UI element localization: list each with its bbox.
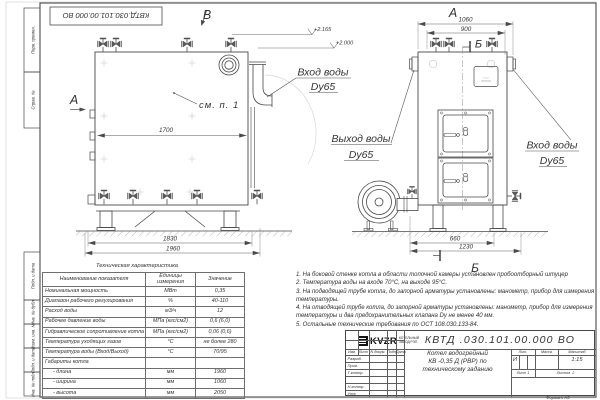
spec-row: Диапазон рабочего регулирования%40-110 xyxy=(43,297,245,307)
valve-icon xyxy=(226,39,237,53)
spec-cell xyxy=(146,358,196,368)
margin-label: Взам. инв. № xyxy=(31,323,36,349)
left-tabs xyxy=(88,110,95,204)
scale-label: Масштаб xyxy=(558,350,596,354)
water-inlet-label-top: Вход воды Dy65 xyxy=(267,67,351,98)
spec-header-row: Наименование показателя Единицы измерени… xyxy=(43,273,245,287)
sheets-value: 2 xyxy=(572,371,574,375)
col-doc: N докум. xyxy=(369,350,387,354)
format-label: Формат А3 xyxy=(546,395,596,400)
side-legs xyxy=(430,205,506,231)
valve-icon xyxy=(407,187,416,199)
dim-text: 1960 xyxy=(166,246,181,253)
valve-icon xyxy=(98,39,109,53)
margin-label: Подп. и дата xyxy=(31,262,36,289)
spec-cell: 12 xyxy=(196,307,245,317)
water-inlet-text: Вход воды xyxy=(298,67,349,79)
blower-fan xyxy=(358,181,400,231)
doc-name-line: Котел водогрейный xyxy=(404,350,511,358)
valve-icon xyxy=(431,39,442,53)
spec-row: Расход водым3/ч12 xyxy=(43,307,245,317)
door-latch-icon xyxy=(463,127,467,135)
spec-row: - длинамм1960 xyxy=(43,368,245,378)
spec-cell: 1060 xyxy=(196,378,245,388)
spec-row: Температура воды (Вход/Выход)°С70/95 xyxy=(43,348,245,358)
dim-text: 1060 xyxy=(458,17,473,24)
dim-text: 1830 xyxy=(163,236,178,243)
spec-cell: Гидравлическое сопротивление котла xyxy=(43,327,146,337)
spec-cell: - ширина xyxy=(43,378,146,388)
spec-cell: 1960 xyxy=(196,368,245,378)
drawing-sheet: Перв. примен. Справ. № Подп. и дата Инв.… xyxy=(0,0,600,400)
valve-icon xyxy=(162,191,173,205)
sheets-label: Листов xyxy=(557,371,570,375)
spec-cell: мм xyxy=(146,368,196,378)
spec-table-title: Техническая характеристика xyxy=(42,263,232,272)
ghost-marks xyxy=(101,60,196,196)
margin-label: Перв. примен. xyxy=(31,26,36,54)
top-valves xyxy=(98,39,237,53)
valve-icon xyxy=(192,191,203,205)
spec-cell: °С xyxy=(146,348,196,358)
spec-cell: мм xyxy=(146,388,196,398)
valve-icon xyxy=(507,191,521,202)
top-flange xyxy=(219,55,239,75)
spec-cell: 0,35 xyxy=(196,287,245,297)
spec-cell: не более 280 xyxy=(196,337,245,347)
row-prov: Пров. xyxy=(346,363,358,368)
margin-labels: Перв. примен. Справ. № Подп. и дата Инв.… xyxy=(31,26,36,397)
spec-cell: 70/95 xyxy=(196,348,245,358)
row-tkontr: Т.контр. xyxy=(346,370,364,375)
valve-icon xyxy=(252,191,263,205)
note-item: 5. Остальные технические требования по О… xyxy=(296,321,595,329)
doc-designation: КВТД .030.101.00.000 ВО xyxy=(404,331,596,349)
spec-table-block: Техническая характеристика Наименование … xyxy=(42,263,232,399)
note-item: 3. На подводящей трубе котла, до запорно… xyxy=(296,288,595,305)
water-inlet-text: Вход воды xyxy=(527,140,578,152)
row-nkontr: Н.контр. xyxy=(346,384,364,389)
kvzr-logo-icon xyxy=(358,336,368,346)
section-mark-top xyxy=(463,41,471,53)
margin-label: Подп. и дата xyxy=(31,346,36,373)
valve-icon xyxy=(99,191,110,205)
valve-icon xyxy=(182,39,193,53)
ground-line xyxy=(76,231,292,236)
elevation-value: +2.165 xyxy=(314,27,332,33)
dim-text: 1700 xyxy=(159,127,174,134)
support-frame xyxy=(96,211,240,231)
spec-cell: 0,6 (6,0) xyxy=(196,317,245,327)
valve-icon xyxy=(444,39,455,53)
valve-icon xyxy=(111,39,122,53)
spec-cell: Рабочее давление воды xyxy=(43,317,146,327)
water-inlet-label-right: Вход воды Dy65 xyxy=(514,70,580,167)
sp ec-row: - высотамм2050 xyxy=(43,388,245,398)
valve-icon xyxy=(487,39,498,53)
spec-row: Температура уходящих газов°Сне более 280 xyxy=(43,337,245,347)
water-inlet-dn: Dy65 xyxy=(311,81,336,93)
company-logo-text: KVZR xyxy=(370,336,397,347)
front-view xyxy=(76,39,316,237)
inlet-pipe xyxy=(249,62,316,188)
spec-cell: 2050 xyxy=(196,388,245,398)
note-item: 4. На отводящей трубе котла, до запорной… xyxy=(296,304,595,321)
door-latch-icon xyxy=(463,173,467,181)
spec-cell: - высота xyxy=(43,388,146,398)
spec-cell: МПа (кгс/см2) xyxy=(146,327,196,337)
outlet-flange xyxy=(410,57,419,71)
margin-label: Инв. № дубл. xyxy=(31,299,36,325)
spec-row: Гидравлическое сопротивление котлаМПа (к… xyxy=(43,327,245,337)
doc-name-line: техническому заданию xyxy=(404,366,511,374)
dim-text: 1230 xyxy=(459,244,474,251)
spec-cell: % xyxy=(146,297,196,307)
spec-cell: Номинальная мощность xyxy=(43,287,146,297)
water-outlet-label: Выход воды Dy65 xyxy=(331,70,414,161)
spec-row: Габариты котла xyxy=(43,358,245,368)
margin-label: Инв. № подл. xyxy=(31,371,36,397)
spec-cell: °С xyxy=(146,337,196,347)
lit-label: Лит. xyxy=(511,350,535,354)
water-outlet-dn: Dy65 xyxy=(349,149,374,161)
water-outlet-text: Выход воды xyxy=(331,133,390,145)
spec-cell: 0,06 (0,6) xyxy=(196,327,245,337)
top-stamp: КВТД.030.101.00.000 ВО xyxy=(50,7,162,25)
spec-cell: м3/ч xyxy=(146,307,196,317)
bottom-valves xyxy=(99,191,263,205)
spec-cell: Температура воды (Вход/Выход) xyxy=(43,348,146,358)
upper-door xyxy=(438,110,493,157)
dim-text: 660 xyxy=(450,236,461,243)
spec-cell: Габариты котла xyxy=(43,358,146,368)
spec-cell xyxy=(196,358,245,368)
valve-icon xyxy=(128,191,139,205)
stamp-designation: КВТД.030.101.00.000 ВО xyxy=(63,11,150,20)
col-list: Лист xyxy=(358,350,369,354)
lower-door xyxy=(438,158,493,203)
col-izm: Изм. xyxy=(346,350,358,354)
spec-cell: - длина xyxy=(43,368,146,378)
spec-cell: Температура уходящих газов xyxy=(43,337,146,347)
row-razrab: Разраб. xyxy=(346,356,362,361)
water-inlet-dn: Dy65 xyxy=(540,155,565,167)
elevation-value: +2.000 xyxy=(336,41,354,47)
dim-text: 900 xyxy=(461,26,472,33)
spec-table: Наименование показателя Единицы измерени… xyxy=(42,272,245,399)
spec-cell: мм xyxy=(146,378,196,388)
mass-label: Масса xyxy=(535,350,558,354)
doc-name: Котел водогрейный КВ -0,35 Д (РВР) по те… xyxy=(404,350,511,374)
col-podp: Подп. xyxy=(387,350,396,354)
technical-notes: 1. На боковой стенке котла в области топ… xyxy=(296,271,595,329)
note-item: 1. На боковой стенке котла в области топ… xyxy=(296,271,595,279)
section-mark-bottom xyxy=(433,250,440,261)
air-duct xyxy=(397,196,418,213)
row-utv: Утв. xyxy=(346,391,357,396)
view-title-a: А xyxy=(448,6,457,20)
view-arrow-a xyxy=(80,108,87,112)
doc-name-line: КВ -0,35 Д (РВР) по xyxy=(404,358,511,366)
note-item: 2. Температура воды на входе 70°С, на вы… xyxy=(296,279,595,287)
spec-cell: 40-110 xyxy=(196,297,245,307)
title-block: КВТД .030.101.00.000 ВО Изм. Лист N доку… xyxy=(345,330,595,396)
spec-row: Номинальная мощностьМВт0,35 xyxy=(43,287,245,297)
margin-label: Справ. № xyxy=(31,90,36,109)
spec-cell: МПа (кгс/см2) xyxy=(146,317,196,327)
scale-value: 1:15 xyxy=(558,357,596,363)
sheets-cell: Листов 2 xyxy=(535,371,596,375)
sheet-cell: Лист 1 xyxy=(511,371,535,375)
spec-cell: Расход воды xyxy=(43,307,146,317)
spec-cell: Диапазон рабочего регулирования xyxy=(43,297,146,307)
spec-cell: МВт xyxy=(146,287,196,297)
spec-col-value: Значение xyxy=(196,273,245,287)
spec-row: - ширинамм1060 xyxy=(43,378,245,388)
nameplate xyxy=(474,67,498,87)
spec-row: Рабочее давление водыМПа (кгс/см2)0,6 (6… xyxy=(43,317,245,327)
view-arrow-label-b: В xyxy=(203,8,211,22)
section-label: Б xyxy=(475,39,482,51)
inlet-flange xyxy=(507,57,516,71)
lit-value: И xyxy=(511,357,519,363)
spec-col-name: Наименование показателя xyxy=(43,273,146,287)
col-data: Дата xyxy=(396,350,404,354)
see-note-label: см. п. 1 xyxy=(199,100,239,111)
sheet-label: Лист xyxy=(517,371,527,375)
sheet-value: 1 xyxy=(527,371,529,375)
view-arrow-label-a: А xyxy=(69,93,78,107)
spec-col-units: Единицы измерения xyxy=(146,273,196,287)
